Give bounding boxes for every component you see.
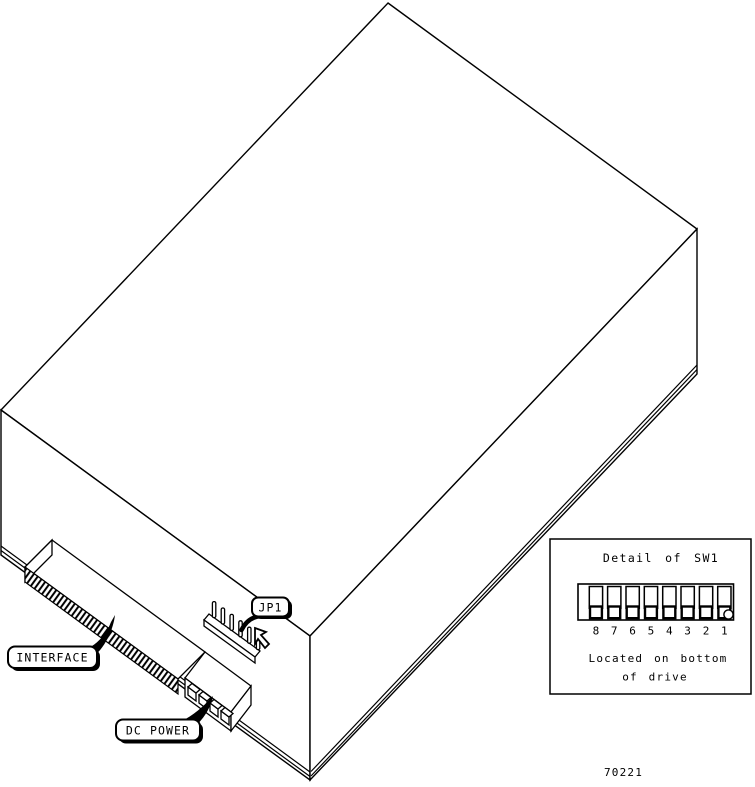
jp1-pin (221, 608, 224, 624)
drive-diagram-canvas: INTERFACE DC POWER JP1 Detail of SW1 (0, 0, 755, 787)
dip-switch-actuator (663, 607, 675, 619)
dip-switch-actuator (645, 607, 657, 619)
detail-panel-title: Detail of SW1 (603, 551, 719, 565)
dip-switch-actuator (700, 607, 712, 619)
detail-panel-note-line2: of drive (622, 671, 688, 684)
interface-callout-label: INTERFACE (16, 651, 88, 665)
sw1-detail-panel: Detail of SW1 (550, 539, 751, 694)
switch-number: 7 (611, 625, 618, 638)
switch-number: 4 (666, 625, 673, 638)
dip-switch-actuator (682, 607, 694, 619)
jp1-pin (212, 602, 215, 618)
dip-switch-slot (589, 587, 602, 619)
dip-switch-slot (626, 587, 639, 619)
switch-number: 6 (629, 625, 636, 638)
switch-number: 1 (721, 625, 728, 638)
dip-switch-slot (681, 587, 694, 619)
diagram-page: INTERFACE DC POWER JP1 Detail of SW1 (0, 0, 755, 787)
dip-switch-slot (644, 587, 657, 619)
dip-switch-actuator (608, 607, 620, 619)
detail-panel-note-line1: Located on bottom (589, 652, 728, 665)
dip-switch-pin1-marker (724, 610, 733, 619)
dc-power-callout-label: DC POWER (126, 724, 190, 738)
dip-switch-slot (663, 587, 676, 619)
figure-number: 70221 (604, 766, 643, 779)
dip-switch-slot (608, 587, 621, 619)
dip-switch-slot (699, 587, 712, 619)
jp1-pin (248, 627, 251, 643)
switch-number: 2 (703, 625, 710, 638)
jp1-callout-label: JP1 (258, 601, 282, 615)
switch-number: 5 (648, 625, 655, 638)
dip-switch-actuator (627, 607, 639, 619)
dip-switch-actuator (590, 607, 602, 619)
switch-number: 8 (593, 625, 600, 638)
switch-number: 3 (684, 625, 691, 638)
jp1-pin (230, 614, 233, 630)
